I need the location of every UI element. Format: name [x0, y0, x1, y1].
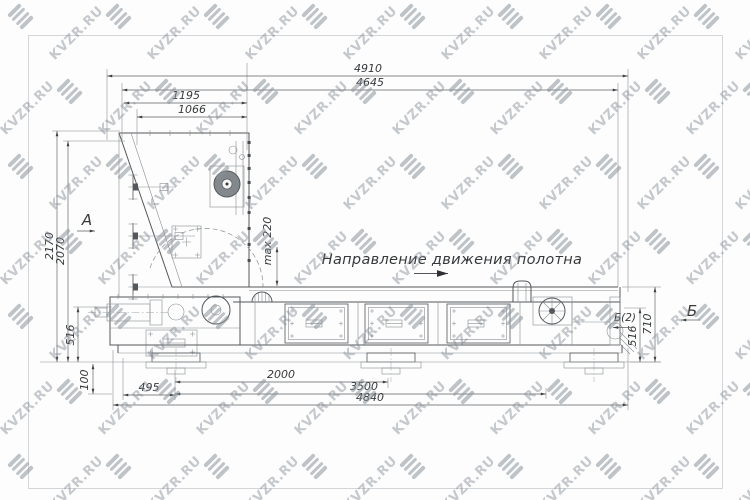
bolted-plate — [146, 330, 197, 356]
section-b2-label: Б(2) — [614, 312, 636, 324]
dim-leg-offset: 495 — [139, 381, 160, 394]
dim-leg-span: 2000 — [267, 368, 295, 381]
section-b-label: Б — [687, 302, 697, 320]
dim-base-left: 516 — [64, 325, 77, 346]
dim-floor: 100 — [78, 370, 91, 391]
dim-bottom-overall: 4840 — [356, 391, 384, 404]
drive-motor — [210, 166, 244, 207]
input-shaft — [88, 300, 170, 325]
dim-outlet-height: 710 — [641, 314, 654, 335]
drawing-sheet: 4910 4645 1195 1066 2170 2070 516 100 71… — [0, 0, 750, 500]
outlet-pipe — [513, 281, 531, 302]
dim-head-outer: 1195 — [172, 89, 200, 102]
machine-body — [110, 281, 637, 354]
dimension-lines — [57, 76, 655, 405]
top-dome — [252, 292, 272, 302]
handwheel-icon — [129, 174, 177, 200]
dim-height-body: 2070 — [54, 237, 67, 265]
access-door — [285, 304, 348, 343]
inspection-plate — [172, 226, 201, 258]
direction-annotation: Направление движения полотна — [322, 252, 582, 274]
dim-top-overall: 4910 — [354, 62, 382, 75]
dim-top-body: 4645 — [356, 76, 384, 89]
handwheel-icon — [129, 274, 173, 300]
machine-base — [40, 345, 661, 382]
dim-max-gap: max 220 — [261, 217, 274, 265]
machine-gearbox — [88, 294, 240, 356]
section-a-label: А — [81, 211, 92, 229]
direction-label: Направление движения полотна — [322, 252, 582, 268]
handwheel-icon — [129, 223, 196, 249]
machine-head-assembly — [119, 130, 263, 300]
access-door — [365, 304, 428, 343]
dim-head-inner: 1066 — [178, 103, 206, 116]
access-door — [447, 304, 510, 343]
section-labels: А Б Б(2) — [77, 211, 700, 328]
dim-base-right: 516 — [626, 326, 639, 347]
drawing-canvas: 4910 4645 1195 1066 2170 2070 516 100 71… — [0, 0, 750, 500]
swing-arc — [150, 228, 263, 287]
fan-unit — [533, 297, 572, 325]
